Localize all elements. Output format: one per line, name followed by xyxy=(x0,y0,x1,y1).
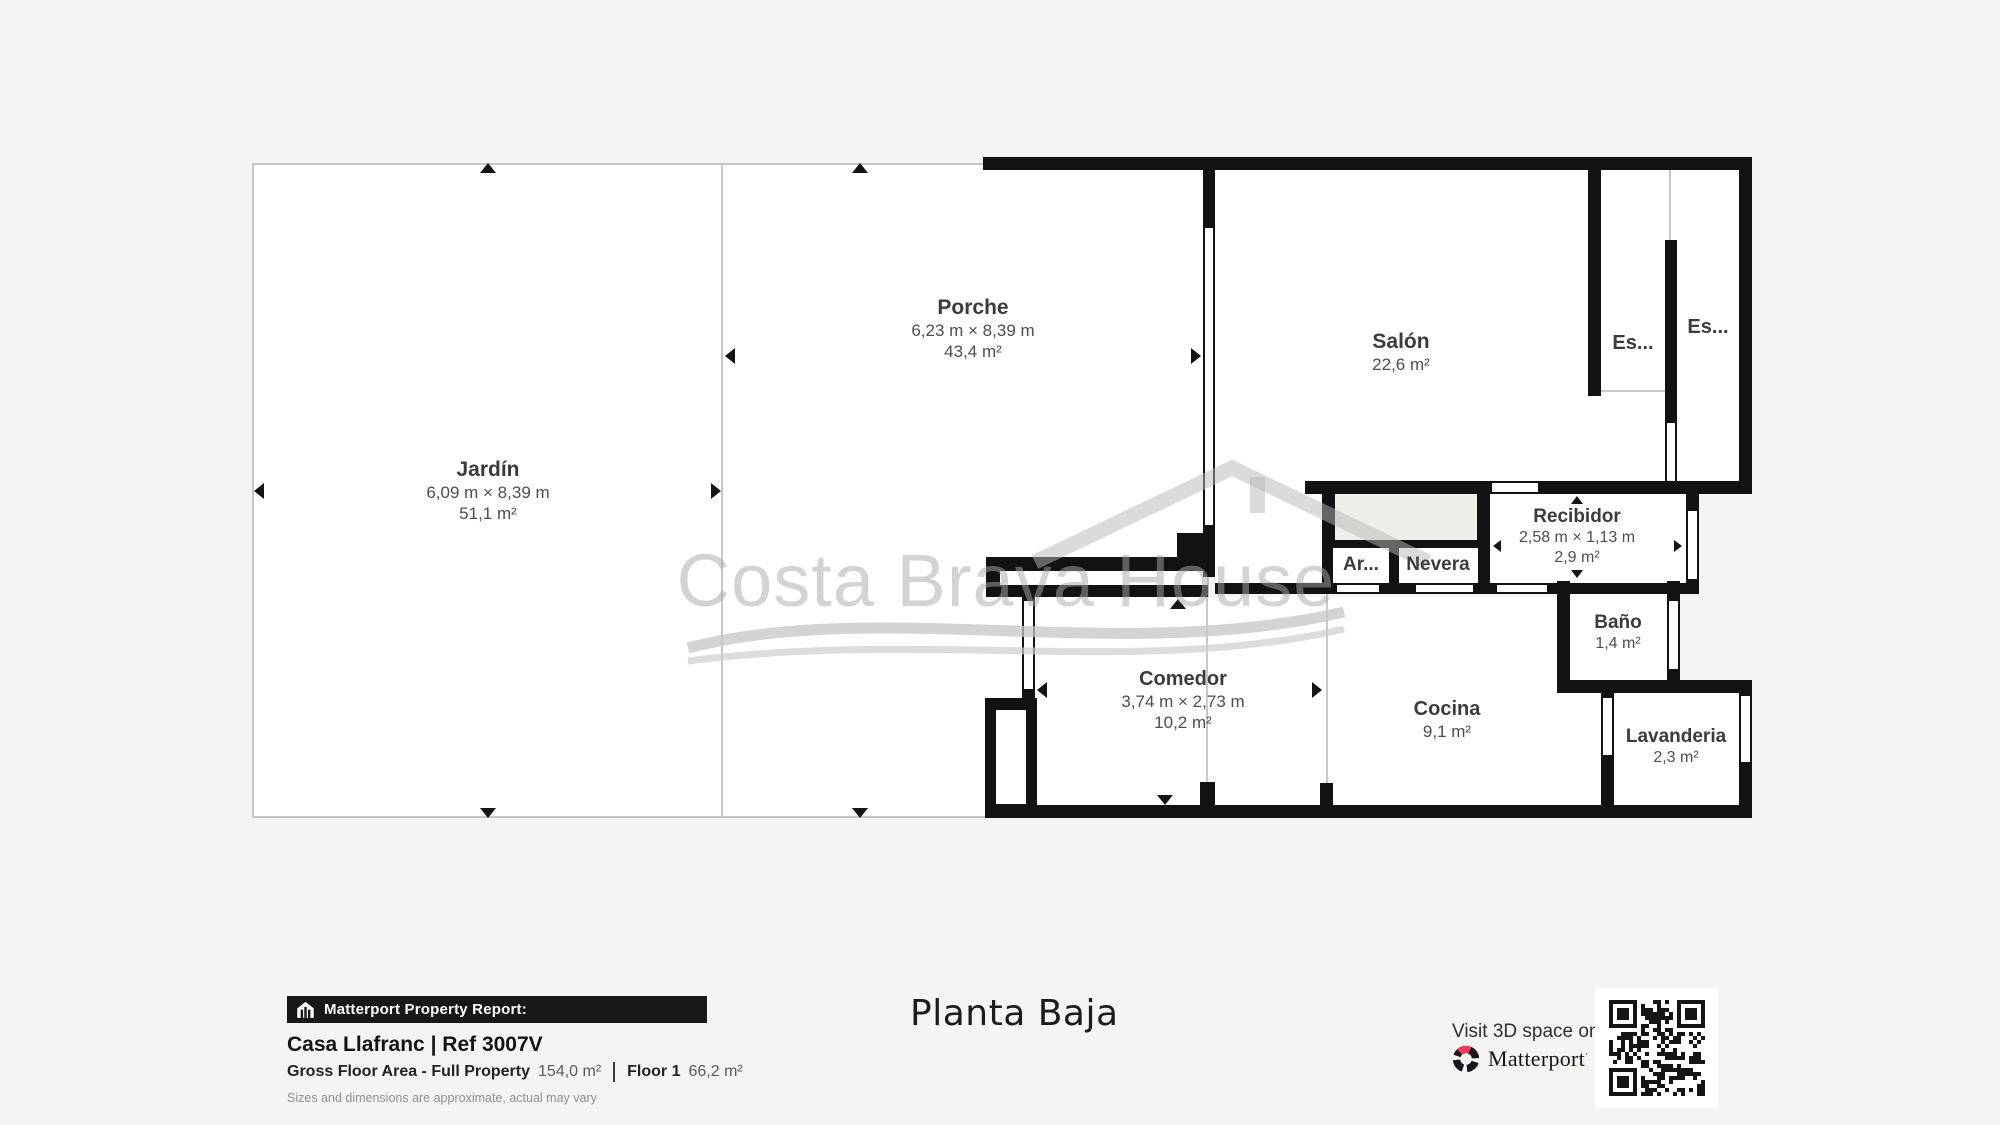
measure-arrow-right xyxy=(711,483,721,499)
measure-arrow-right xyxy=(1312,682,1322,698)
measure-arrow-down xyxy=(1157,795,1173,805)
door-stairs xyxy=(1667,423,1675,481)
room-name: Nevera xyxy=(1406,554,1469,576)
measure-arrow-down xyxy=(480,808,496,818)
room-label-comedor: Comedor 3,74 m × 2,73 m 10,2 m² xyxy=(1121,668,1244,733)
measure-arrow-down xyxy=(852,808,868,818)
window-bano-right xyxy=(1669,601,1678,669)
room-name: Lavanderia xyxy=(1626,726,1726,748)
room-area: 10,2 m² xyxy=(1121,712,1244,733)
wall-top xyxy=(983,157,1752,170)
room-name: Es... xyxy=(1687,316,1728,339)
room-area: 51,1 m² xyxy=(426,503,549,524)
qr-code-pattern xyxy=(1609,1000,1705,1096)
room-name: Es... xyxy=(1612,332,1653,355)
room-area: 2,9 m² xyxy=(1519,548,1635,568)
room-label-jardin: Jardín 6,09 m × 8,39 m 51,1 m² xyxy=(426,458,549,524)
gfa-value: 154,0 m² xyxy=(538,1063,601,1081)
room-label-bano: Baño 1,4 m² xyxy=(1594,612,1642,654)
measure-arrow-up xyxy=(1571,496,1583,504)
room-label-cocina: Cocina 9,1 m² xyxy=(1414,698,1481,742)
qr-code xyxy=(1595,988,1718,1108)
room-label-lavanderia: Lavanderia 2,3 m² xyxy=(1626,726,1726,768)
visit-3d-text: Visit 3D space on xyxy=(1452,1021,1600,1043)
floor-label: Floor 1 xyxy=(627,1063,680,1081)
measure-arrow-left xyxy=(1493,540,1501,552)
matterport-logo-row: Matterport· xyxy=(1452,1045,1589,1073)
measure-arrow-right xyxy=(1674,540,1682,552)
divider xyxy=(613,1062,615,1082)
room-name: Baño xyxy=(1594,612,1642,634)
wall-stairs-left xyxy=(1588,170,1601,396)
door-recibidor-top xyxy=(1492,483,1538,492)
matterport-wordmark: Matterport· xyxy=(1488,1046,1589,1072)
measure-arrow-left xyxy=(254,483,264,499)
room-label-recibidor: Recibidor 2,58 m × 1,13 m 2,9 m² xyxy=(1519,506,1635,568)
room-name: Jardín xyxy=(426,458,549,482)
window-recibidor-right xyxy=(1688,511,1697,579)
measure-arrow-up xyxy=(852,163,868,173)
measure-arrow-left xyxy=(725,348,735,364)
wall-lavanderia-top xyxy=(1557,680,1752,693)
wall-stub-bottom xyxy=(1200,782,1215,805)
room-dims: 3,74 m × 2,73 m xyxy=(1121,691,1244,712)
room-label-salon: Salón 22,6 m² xyxy=(1372,330,1430,375)
room-label-porche: Porche 6,23 m × 8,39 m 43,4 m² xyxy=(911,296,1034,362)
floor-value: 66,2 m² xyxy=(689,1063,743,1081)
room-dims: 6,09 m × 8,39 m xyxy=(426,482,549,503)
watermark-text: Costa Brava House xyxy=(677,538,1336,623)
report-badge-label: Matterport Property Report: xyxy=(324,1001,527,1018)
room-name: Recibidor xyxy=(1519,506,1635,528)
room-label-escalera-2: Es... xyxy=(1687,316,1728,339)
measure-arrow-up xyxy=(480,163,496,173)
room-dims: 6,23 m × 8,39 m xyxy=(911,320,1034,341)
gfa-label: Gross Floor Area - Full Property xyxy=(287,1063,530,1081)
window-lavanderia-right xyxy=(1741,696,1750,762)
matterport-report-badge: Matterport Property Report: xyxy=(287,996,707,1023)
room-name: Cocina xyxy=(1414,698,1481,721)
room-label-escalera-1: Es... xyxy=(1612,332,1653,355)
room-label-nevera: Nevera xyxy=(1406,554,1469,576)
room-area: 2,3 m² xyxy=(1626,748,1726,768)
room-area: 22,6 m² xyxy=(1372,354,1430,375)
room-area: 9,1 m² xyxy=(1414,721,1481,742)
opening-hall-b xyxy=(1416,585,1473,592)
stair-divider-line xyxy=(1669,170,1671,240)
stair-bottom-line xyxy=(1601,390,1665,392)
disclaimer-text: Sizes and dimensions are approximate, ac… xyxy=(287,1091,597,1105)
closet-top-inner xyxy=(1335,494,1477,540)
opening-hall-c xyxy=(1497,585,1547,592)
room-area: 43,4 m² xyxy=(911,341,1034,362)
measure-arrow-right xyxy=(1191,348,1201,364)
measure-arrow-left xyxy=(1037,682,1047,698)
measure-arrow-down xyxy=(1571,570,1583,578)
room-name: Porche xyxy=(911,296,1034,320)
room-label-armario: Ar... xyxy=(1343,554,1379,576)
wall-right-upper xyxy=(1739,157,1752,494)
wall-bottom xyxy=(988,805,1752,818)
nook-inner xyxy=(996,710,1026,804)
house-report-icon xyxy=(296,1001,315,1019)
floor-area-line: Gross Floor Area - Full Property 154,0 m… xyxy=(287,1062,743,1082)
room-name: Comedor xyxy=(1121,668,1244,691)
room-name: Ar... xyxy=(1343,554,1379,576)
area-salon-stairs xyxy=(1215,170,1739,481)
door-lavanderia xyxy=(1603,698,1612,755)
area-comedor-cocina xyxy=(1035,597,1601,805)
opening-hall-a xyxy=(1337,585,1379,592)
floorplan-page: Costa Brava House Jardín 6,09 m × 8,39 m… xyxy=(0,0,2000,1125)
room-name: Salón xyxy=(1372,330,1430,354)
page-title: Planta Baja xyxy=(910,993,1119,1034)
matterport-loop-icon xyxy=(1452,1045,1480,1073)
wall-bano-left xyxy=(1557,581,1570,693)
property-title: Casa Llafranc | Ref 3007V xyxy=(287,1033,543,1057)
room-area: 1,4 m² xyxy=(1594,634,1642,654)
window-porche-salon xyxy=(1205,228,1213,525)
wall-cocina-pillar xyxy=(1320,783,1333,805)
room-dims: 2,58 m × 1,13 m xyxy=(1519,528,1635,548)
